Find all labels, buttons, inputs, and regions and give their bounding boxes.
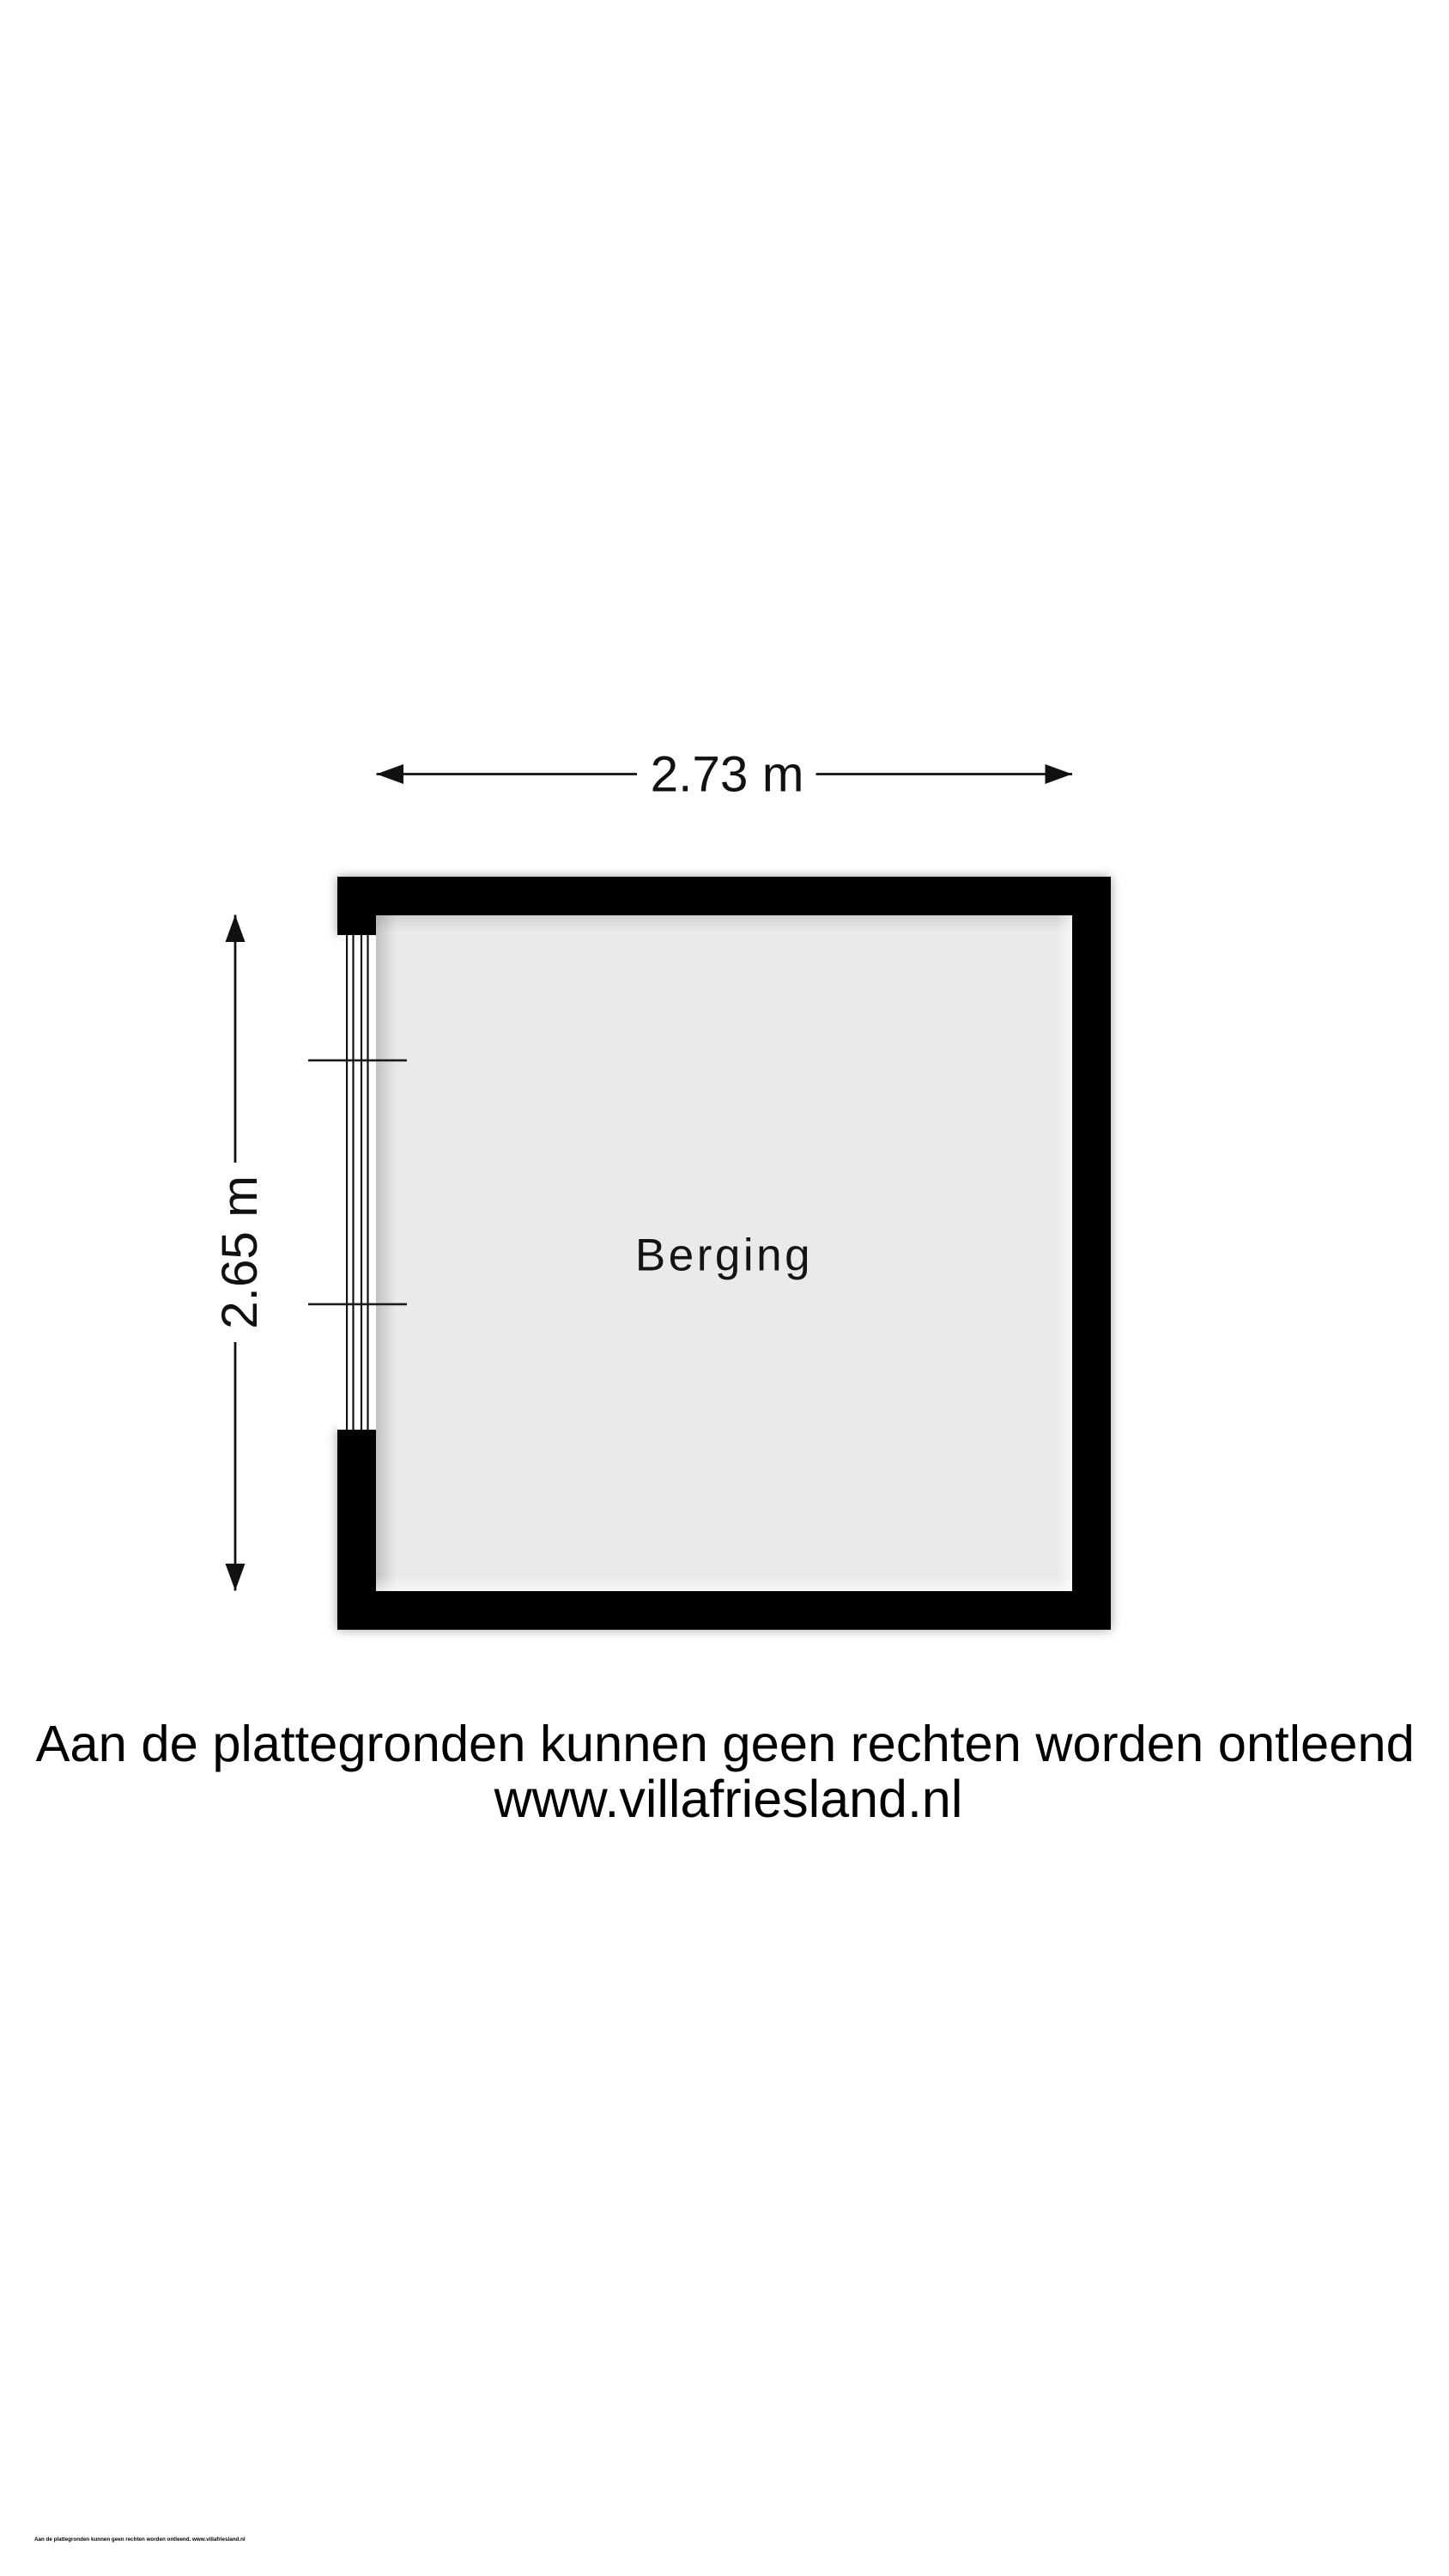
svg-text:Berging: Berging [635, 1230, 813, 1281]
svg-text:2.65 m: 2.65 m [212, 1176, 268, 1329]
svg-text:2.73 m: 2.73 m [651, 746, 804, 802]
svg-text:Aan de plattegronden kunnen ge: Aan de plattegronden kunnen geen rechten… [36, 1715, 1415, 1772]
svg-text:Aan de plattegronden kunnen ge: Aan de plattegronden kunnen geen rechten… [34, 2537, 246, 2543]
svg-text:www.villafriesland.nl: www.villafriesland.nl [494, 1770, 963, 1828]
